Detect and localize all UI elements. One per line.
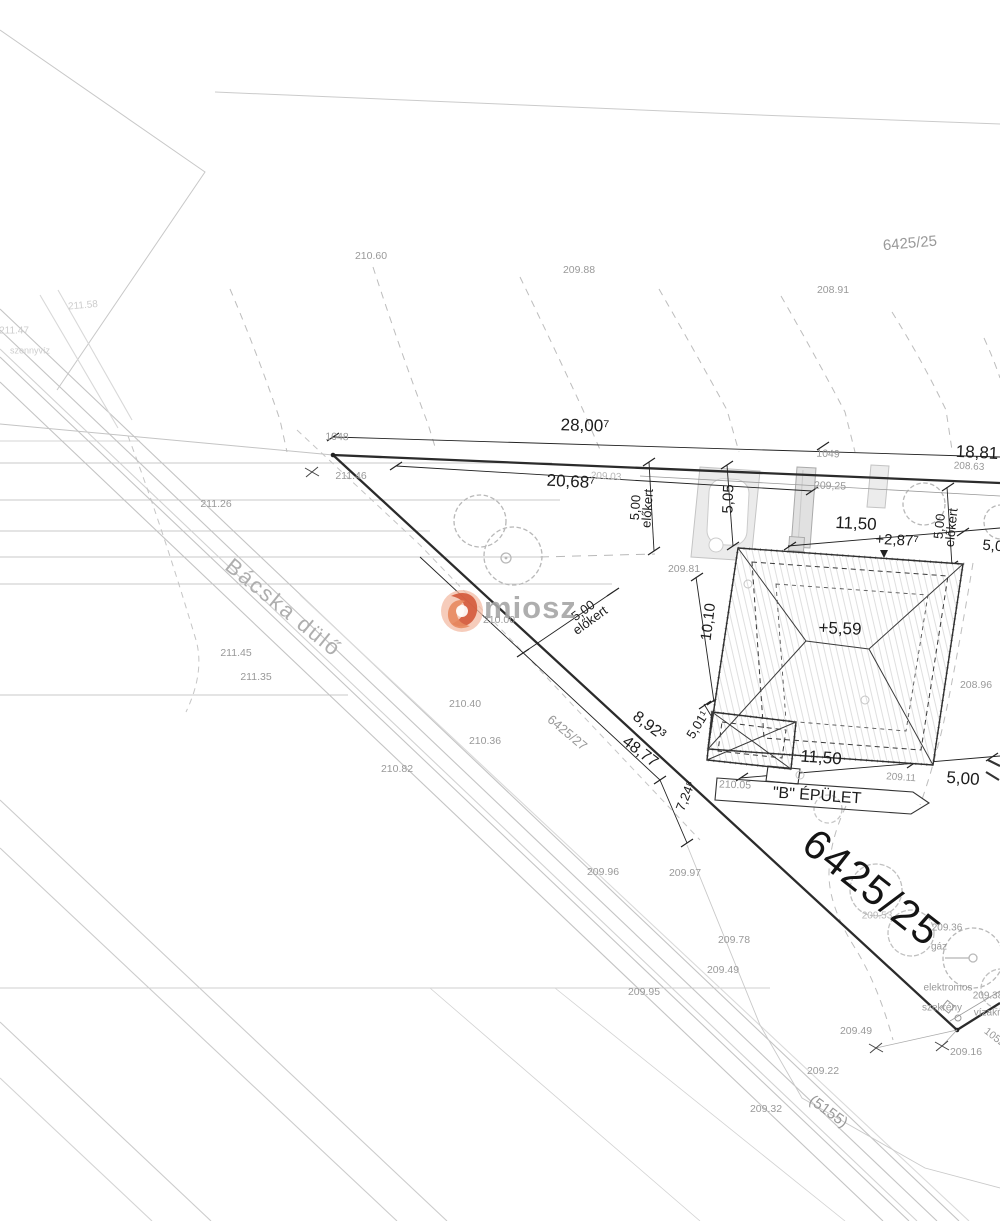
spot-208-96: 208.96 — [960, 681, 992, 691]
spot-210-60: 210.60 — [355, 252, 387, 262]
spot-210-40: 210.40 — [449, 700, 481, 710]
dim-7-24: 7,24⁸ — [675, 779, 698, 812]
spot-209-36: 209.36 — [932, 923, 963, 933]
spot-209-53: 209.53 — [862, 911, 893, 921]
spot-210-82: 210.82 — [381, 765, 413, 775]
spot-209-95: 209.95 — [628, 988, 660, 998]
spot-209-11: 209.11 — [886, 772, 916, 784]
dim-5-00-bottom: 5,00 — [946, 770, 980, 788]
spot-211-26: 211.26 — [200, 500, 231, 510]
spot-211-45: 211.45 — [220, 649, 251, 659]
miosz-swirl-icon — [437, 584, 487, 636]
spot-209-32: 209.32 — [750, 1105, 782, 1115]
dim-28-00: 28,00⁷ — [560, 417, 609, 434]
spot-209-03: 209.03 — [590, 471, 621, 482]
spot-209-49-a: 209.49 — [707, 966, 739, 976]
spot-209-22: 209.22 — [807, 1067, 839, 1077]
util-elektromos: elektromos — [924, 983, 973, 993]
label-b-epulet: "B" ÉPÜLET — [772, 785, 862, 806]
spot-208-91: 208.91 — [817, 286, 849, 296]
pt-1049: 1049 — [816, 450, 840, 461]
spot-209-97: 209.97 — [669, 869, 701, 879]
parcel-6425-25-top: 6425/25 — [882, 235, 937, 254]
dim-elokert-mid: 5,00 előkert — [628, 488, 655, 529]
pt-1048: 1048 — [325, 433, 349, 443]
spot-209-96: 209.96 — [587, 868, 619, 878]
spot-211-58: 211.58 — [68, 300, 99, 312]
street-bacska-dulo: Bácska dülő — [221, 555, 344, 661]
dim-5-05: 5,05 — [721, 484, 736, 514]
note-szennyviz: szennyvíz — [10, 347, 50, 356]
dim-elokert-right: 5,00 előkert — [932, 506, 961, 547]
spot-210-05: 210.05 — [719, 780, 751, 791]
dim-11-50-top: 11,50 — [835, 515, 877, 533]
spot-209-25: 209,25 — [814, 481, 846, 492]
dim-plus-5-59: +5,59 — [818, 620, 862, 638]
spot-208-63: 208.63 — [953, 461, 984, 472]
watermark-text: miosz — [484, 590, 577, 626]
spot-211-47: 211.47 — [0, 326, 29, 336]
parcel-6425-25-big: 6425/25 — [796, 823, 948, 954]
spot-211-46: 211.46 — [335, 472, 366, 482]
dim-5-01: 5,01¹ — [685, 709, 711, 741]
spot-209-78: 209.78 — [718, 936, 750, 946]
spot-209-88: 209.88 — [563, 266, 595, 276]
util-vizakna: vízakna — [974, 1008, 1000, 1018]
util-gaz: gáz — [931, 942, 947, 952]
site-plan-canvas: 6425/25210.60209.88208.91211.58211.47sze… — [0, 0, 1000, 1221]
dim-20-68: 20,68⁷ — [546, 473, 595, 492]
spot-209-49-b: 209.49 — [840, 1027, 872, 1037]
spot-209-16: 209.16 — [950, 1048, 982, 1058]
spot-209-81: 209.81 — [668, 565, 700, 575]
dim-18-81: 18,81 — [955, 444, 998, 462]
spot-210-36: 210.36 — [469, 737, 501, 747]
spot-211-35: 211.35 — [240, 673, 271, 683]
dim-10-10: 10,10 — [700, 602, 719, 641]
watermark: miosz — [437, 584, 587, 638]
dim-11-50-bottom: 11,50 — [800, 749, 842, 768]
road-5155: (5155) — [806, 1093, 849, 1130]
dim-plus-2-87: +2,87⁷ — [875, 533, 919, 550]
spot-209-38: 209.38 — [973, 991, 1000, 1001]
dim-5-05-edge: 5,05 — [982, 539, 1000, 556]
parcel-6425-27: 6425/27 — [545, 713, 589, 753]
util-szekreny: szekrény — [922, 1003, 962, 1013]
pt-1052: 1052 — [982, 1027, 1000, 1049]
